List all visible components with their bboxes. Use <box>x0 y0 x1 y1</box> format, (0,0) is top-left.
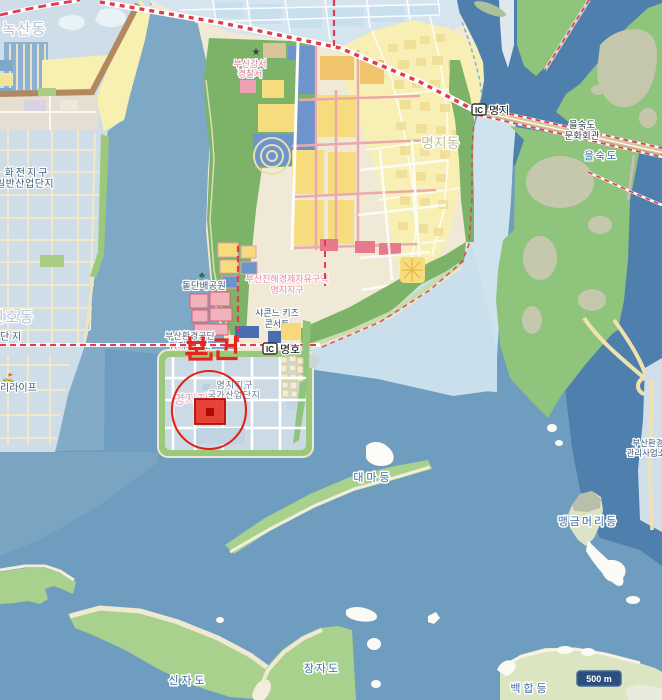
svg-text:을숙도: 을숙도 <box>584 150 617 162</box>
svg-text:을숙도: 을숙도 <box>569 120 595 131</box>
svg-text:일반산업단지: 일반산업단지 <box>0 177 54 190</box>
svg-text:IC: IC <box>475 106 483 115</box>
svg-text:500 m: 500 m <box>586 674 612 684</box>
svg-text:★: ★ <box>252 47 261 58</box>
svg-text:명지동: 명지동 <box>421 135 460 151</box>
svg-text:리라이프: 리라이프 <box>0 382 37 394</box>
svg-text:경찰서: 경찰서 <box>238 68 263 79</box>
svg-text:맹금머리등: 맹금머리등 <box>558 515 619 528</box>
svg-text:샤콘느 키즈: 샤콘느 키즈 <box>255 308 299 318</box>
svg-text:IC: IC <box>266 345 274 354</box>
svg-text:부산강서: 부산강서 <box>233 59 266 69</box>
svg-text:명호: 명호 <box>280 343 300 356</box>
svg-text:신자도: 신자도 <box>168 674 207 687</box>
svg-text:문화회관: 문화회관 <box>565 131 600 142</box>
svg-text:신호동: 신호동 <box>0 309 34 326</box>
svg-text:대마등: 대마등 <box>353 471 392 484</box>
svg-text:돝단배공원: 돝단배공원 <box>182 281 226 292</box>
svg-text:녹산동: 녹산동 <box>2 21 46 38</box>
svg-text:부산환경: 부산환경 <box>632 438 662 448</box>
svg-text:화전지구: 화전지구 <box>5 167 50 179</box>
svg-text:명지: 명지 <box>489 104 509 117</box>
svg-text:단 지: 단 지 <box>0 331 21 343</box>
svg-text:관리사업소: 관리사업소 <box>626 448 662 458</box>
svg-text:장자도: 장자도 <box>304 662 340 675</box>
svg-text:백합등: 백합등 <box>510 682 549 695</box>
svg-text:부산진해경제자유구역: 부산진해경제자유구역 <box>246 273 329 284</box>
svg-text:♣: ♣ <box>199 270 205 280</box>
svg-text:명지지구: 명지지구 <box>270 285 303 295</box>
